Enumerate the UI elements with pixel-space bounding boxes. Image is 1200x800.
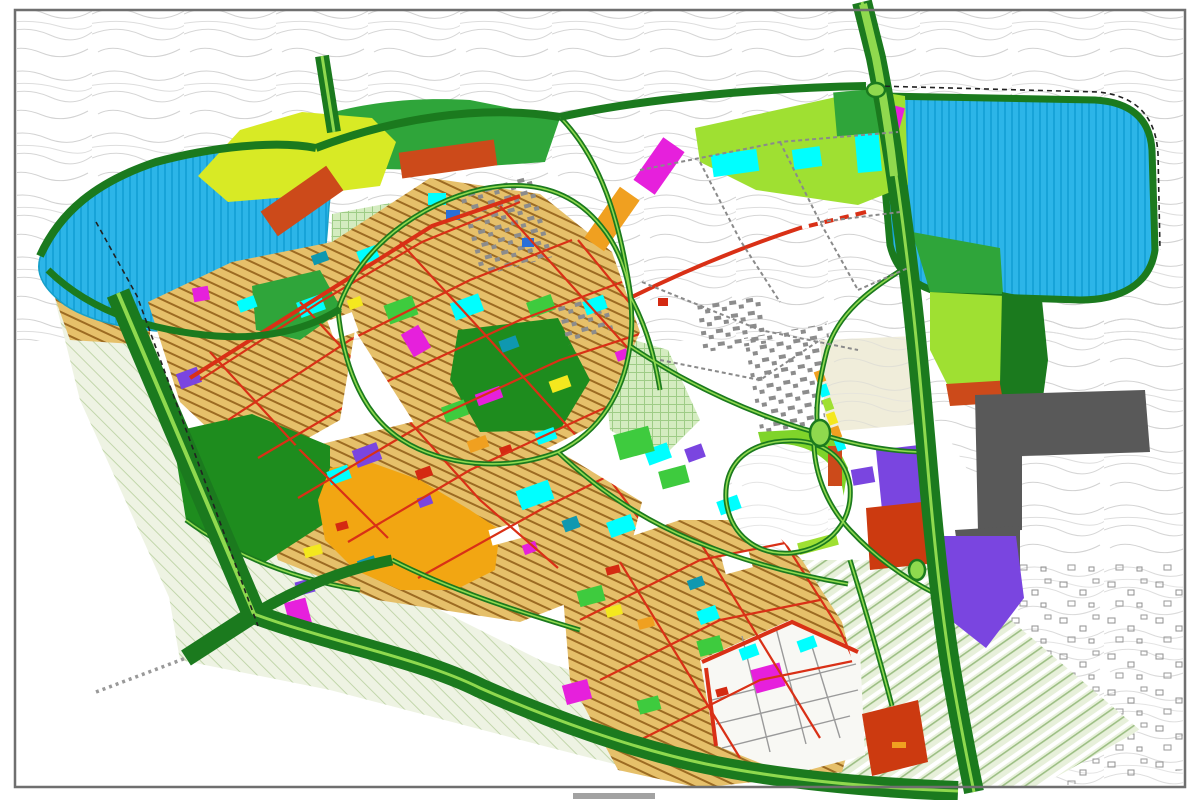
parcel-purple <box>684 443 706 462</box>
parcel-green_bright <box>658 465 690 490</box>
road-segment <box>96 658 186 692</box>
roundabout <box>867 83 885 97</box>
parcel-purple <box>851 466 875 486</box>
parcel-cyan <box>792 146 823 170</box>
master-plan-map <box>0 0 1200 800</box>
cropped-caption-fragment <box>573 793 655 799</box>
plan-drawing-page <box>0 0 1200 800</box>
roundabout <box>810 420 830 446</box>
parcel-red_parcel <box>658 298 668 306</box>
parcel-orange <box>892 742 906 748</box>
reservoir-northeast <box>880 96 1155 300</box>
roundabout <box>909 560 925 580</box>
parcel-magenta <box>192 286 210 303</box>
zone-lime-east <box>930 292 1012 386</box>
dashed-gray-road <box>96 658 186 692</box>
